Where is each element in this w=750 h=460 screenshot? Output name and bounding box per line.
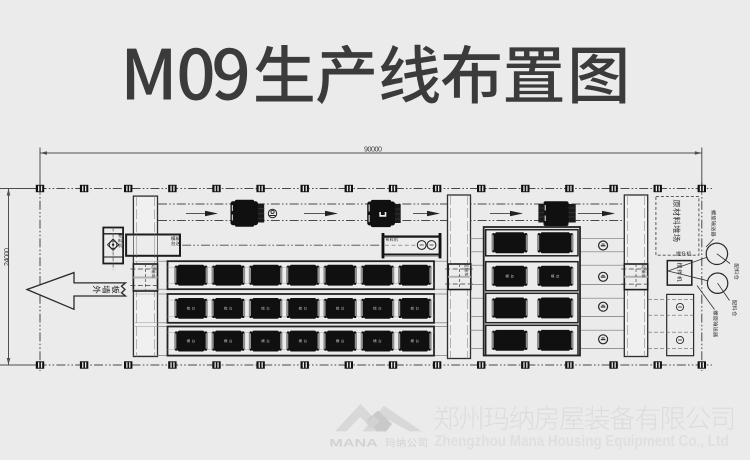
svg-text:MANA: MANA <box>329 438 377 450</box>
svg-text:Zhengzhou Mana Housing Equipme: Zhengzhou Mana Housing Equipment Co., Lt… <box>434 433 728 450</box>
svg-text:24000: 24000 <box>2 248 11 266</box>
svg-text:90000: 90000 <box>364 145 382 154</box>
